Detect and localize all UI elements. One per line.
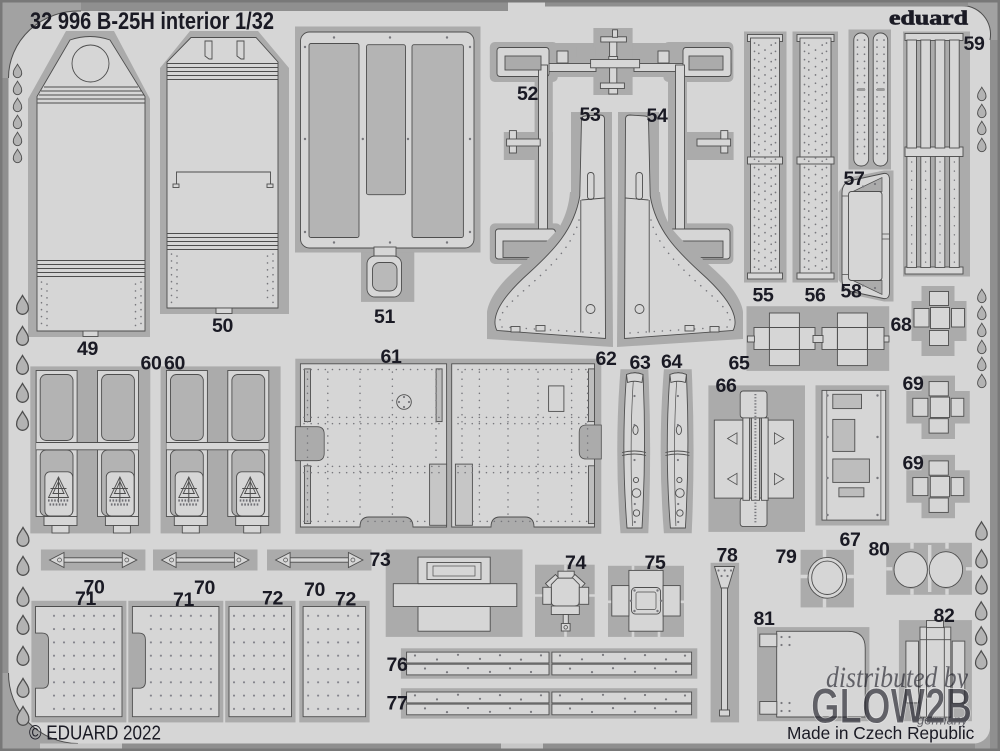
svg-text:32 996 B-25H interior 1/32: 32 996 B-25H interior 1/32 xyxy=(30,8,274,35)
svg-text:65: 65 xyxy=(729,353,750,375)
svg-text:52: 52 xyxy=(517,83,538,105)
svg-text:58: 58 xyxy=(841,281,862,303)
svg-text:72: 72 xyxy=(262,588,283,610)
svg-text:54: 54 xyxy=(647,105,668,127)
svg-text:71: 71 xyxy=(173,589,194,611)
svg-text:68: 68 xyxy=(891,314,912,336)
svg-text:62: 62 xyxy=(596,348,617,370)
svg-text:50: 50 xyxy=(212,315,233,337)
svg-text:69: 69 xyxy=(903,453,924,475)
svg-text:79: 79 xyxy=(776,546,797,568)
svg-text:53: 53 xyxy=(580,104,601,126)
svg-text:49: 49 xyxy=(77,338,98,360)
svg-text:60: 60 xyxy=(141,353,162,375)
svg-text:55: 55 xyxy=(753,285,774,307)
svg-text:Made in Czech Republic: Made in Czech Republic xyxy=(787,723,975,743)
svg-text:76: 76 xyxy=(387,654,408,676)
svg-text:© EDUARD 2022: © EDUARD 2022 xyxy=(29,722,161,745)
svg-text:60: 60 xyxy=(164,353,185,375)
svg-text:70: 70 xyxy=(194,577,215,599)
svg-text:eduard: eduard xyxy=(889,9,968,30)
svg-text:56: 56 xyxy=(805,285,826,307)
svg-text:75: 75 xyxy=(645,552,666,574)
svg-text:59: 59 xyxy=(964,33,985,55)
svg-text:80: 80 xyxy=(869,539,890,561)
svg-text:73: 73 xyxy=(370,549,391,571)
svg-text:51: 51 xyxy=(374,306,395,328)
svg-text:82: 82 xyxy=(934,605,955,627)
svg-text:81: 81 xyxy=(754,608,775,630)
svg-text:74: 74 xyxy=(565,552,586,574)
svg-text:63: 63 xyxy=(630,352,651,374)
svg-text:67: 67 xyxy=(840,529,861,551)
svg-text:69: 69 xyxy=(903,373,924,395)
svg-text:70: 70 xyxy=(304,579,325,601)
svg-text:61: 61 xyxy=(381,346,402,368)
svg-text:57: 57 xyxy=(844,168,865,190)
svg-text:66: 66 xyxy=(716,375,737,397)
svg-text:72: 72 xyxy=(335,589,356,611)
svg-text:78: 78 xyxy=(717,545,738,567)
svg-text:64: 64 xyxy=(661,351,682,373)
svg-text:71: 71 xyxy=(75,588,96,610)
svg-text:77: 77 xyxy=(387,693,408,715)
